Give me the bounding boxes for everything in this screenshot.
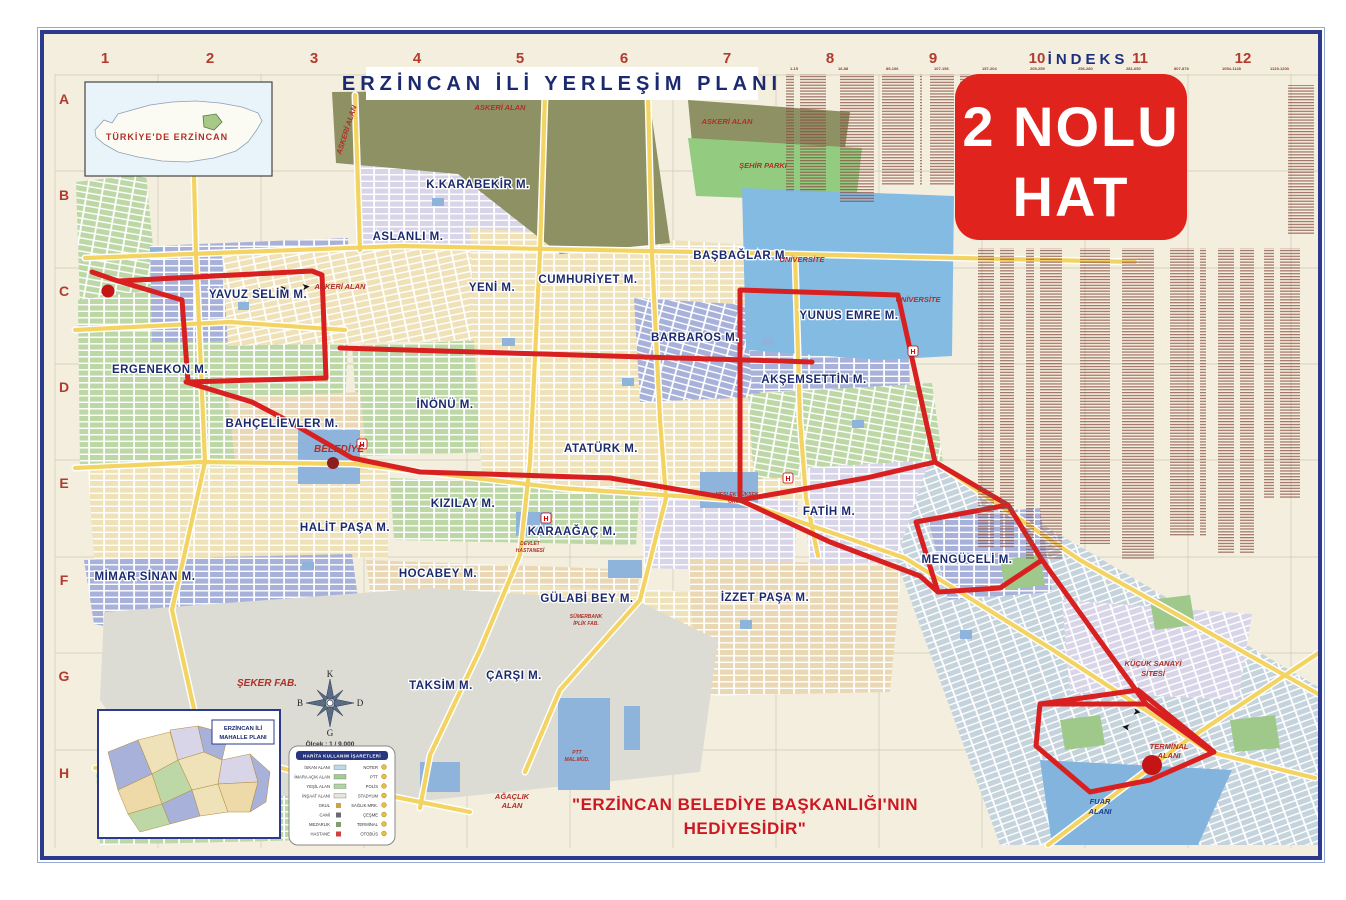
area-label: İPLİK FAB. <box>573 620 599 627</box>
svg-text:STADYUM: STADYUM <box>358 794 379 799</box>
svg-text:E: E <box>59 475 68 491</box>
svg-text:SAĞLIK MRK.: SAĞLIK MRK. <box>351 803 378 808</box>
svg-text:MEZARLIK: MEZARLIK <box>309 822 330 827</box>
neighborhood-label: TAKSİM M. <box>409 679 473 692</box>
map-sheet: ➤ ➤ ➤ ➤ ➤ H H H H K.KARABEKİR M. ASLANLI… <box>40 30 1322 860</box>
university-lake-area <box>742 188 954 360</box>
svg-text:NOTER: NOTER <box>363 765 378 770</box>
svg-text:807-878: 807-878 <box>1174 66 1189 71</box>
neighborhood-label: YENİ M. <box>469 281 515 294</box>
svg-text:OKUL: OKUL <box>319 803 331 808</box>
svg-text:9: 9 <box>929 50 937 67</box>
neighborhood-label: BAHÇELİEVLER M. <box>226 417 339 430</box>
compass-west: B <box>297 698 303 708</box>
area-label: SİTESİ <box>1141 669 1166 678</box>
badge-line2: HAT <box>1013 165 1130 228</box>
badge-line1: 2 NOLU <box>962 95 1179 158</box>
turkey-inset: TÜRKİYE'DE ERZİNCAN <box>85 82 272 176</box>
neighborhood-label: İZZET PAŞA M. <box>721 591 809 604</box>
area-label: PTT <box>572 750 582 756</box>
area-label: ASKERİ ALAN <box>701 117 754 126</box>
neighborhood-label: KIZILAY M. <box>431 498 495 510</box>
neighborhood-label: BARBAROS M. <box>651 332 739 344</box>
neighborhood-label: GÜLABİ BEY M. <box>540 592 633 605</box>
svg-text:256-280: 256-280 <box>1078 66 1093 71</box>
area-label: ÜNİVERSİTE <box>895 295 941 304</box>
svg-text:1: 1 <box>101 50 109 67</box>
svg-text:7: 7 <box>723 50 731 67</box>
svg-text:➤: ➤ <box>1121 720 1131 732</box>
turkey-inset-label: TÜRKİYE'DE ERZİNCAN <box>106 132 228 142</box>
city-hall-label: BELEDİYE <box>314 442 364 455</box>
svg-text:8: 8 <box>826 50 834 67</box>
compass-south: G <box>327 728 334 738</box>
neighborhood-label: YUNUS EMRE M. <box>799 310 898 322</box>
svg-text:11: 11 <box>1132 50 1148 67</box>
title-band: ERZİNCAN İLİ YERLEŞİM PLANI <box>342 67 782 100</box>
svg-text:16-88: 16-88 <box>838 66 849 71</box>
city-map[interactable]: ➤ ➤ ➤ ➤ ➤ H H H H K.KARABEKİR M. ASLANLI… <box>44 34 1318 856</box>
area-label: MAL.MÜD. <box>565 756 590 763</box>
svg-text:ÇEŞME: ÇEŞME <box>363 813 378 818</box>
svg-text:CAMİ: CAMİ <box>320 813 330 818</box>
svg-text:HASTANE: HASTANE <box>311 832 331 837</box>
map-page: { "page": { "title": "ERZİNCAN İLİ YERLE… <box>0 0 1346 900</box>
area-label: AĞAÇLIK <box>494 792 530 801</box>
svg-text:G: G <box>59 668 70 684</box>
neighborhood-label: ASLANLI M. <box>373 231 444 243</box>
svg-text:PTT: PTT <box>370 775 378 780</box>
city-hall-marker <box>327 457 339 469</box>
area-label: ALANI <box>1088 807 1113 816</box>
svg-text:281-650: 281-650 <box>1126 66 1141 71</box>
area-label: SÜMERBANK <box>570 613 603 620</box>
svg-text:12: 12 <box>1235 50 1252 67</box>
svg-text:İMARA AÇIK ALAN: İMARA AÇIK ALAN <box>294 775 330 780</box>
area-label: ASKERİ ALAN <box>474 103 527 112</box>
neighborhood-label: KARAAĞAÇ M. <box>528 525 617 538</box>
neighborhood-label: MENGÜCELİ M. <box>922 553 1013 566</box>
neighborhood-label: FATİH M. <box>803 505 855 518</box>
area-label: ASKERİ ALAN <box>314 282 367 291</box>
page-title: ERZİNCAN İLİ YERLEŞİM PLANI <box>342 72 782 95</box>
svg-text:5: 5 <box>516 50 524 67</box>
area-label: ŞEKER FAB. <box>237 678 297 689</box>
neighborhood-label: İNÖNÜ M. <box>416 398 473 411</box>
neighborhood-label: HALİT PAŞA M. <box>300 521 390 534</box>
area-label: ÜNİVERSİTE <box>779 255 825 264</box>
svg-text:1054-1128: 1054-1128 <box>1222 66 1242 71</box>
neighborhood-label: HOCABEY M. <box>399 568 477 580</box>
svg-text:F: F <box>60 572 69 588</box>
mahalle-inset-label: MAHALLE PLANI <box>219 735 267 741</box>
svg-text:157-204: 157-204 <box>982 66 997 71</box>
neighborhood-label: MİMAR SİNAN M. <box>95 570 196 583</box>
neighborhood-label: YAVUZ SELİM M. <box>209 288 307 301</box>
neighborhood-label: ATATÜRK M. <box>564 442 638 455</box>
neighborhood-label: ÇARŞI M. <box>486 670 542 682</box>
svg-text:OTOBÜS: OTOBÜS <box>360 832 378 837</box>
svg-text:C: C <box>59 283 69 299</box>
area-label: DEVLET <box>520 541 541 547</box>
compass-north: K <box>327 669 334 679</box>
dedication-line2: HEDİYESİDİR" <box>684 819 807 838</box>
area-label: FUAR <box>1090 797 1111 806</box>
mahalle-inset-label: ERZİNCAN İLİ <box>224 725 263 732</box>
area-label: ALANI <box>1157 751 1182 760</box>
area-label: TERMİNAL <box>1150 742 1189 751</box>
area-label: ŞEHİR PARKI <box>739 161 788 170</box>
hospital-icon: H <box>543 516 548 523</box>
svg-text:H: H <box>59 765 69 781</box>
map-legend: HARİTA KULLANIM İŞARETLERİ İSKAN ALANI İ… <box>289 746 395 845</box>
svg-text:1-15: 1-15 <box>790 66 799 71</box>
line-2-badge: 2 NOLU HAT <box>955 74 1187 240</box>
svg-text:2: 2 <box>206 50 214 67</box>
neighborhood-label: CUMHURİYET M. <box>538 273 637 286</box>
svg-text:B: B <box>59 187 69 203</box>
svg-text:4: 4 <box>413 50 422 67</box>
area-label: HASTANESİ <box>516 547 545 554</box>
dedication-line1: "ERZİNCAN BELEDİYE BAŞKANLIĞI'NIN <box>572 795 918 814</box>
svg-text:➤: ➤ <box>1132 706 1142 718</box>
svg-text:10: 10 <box>1029 50 1046 67</box>
svg-text:TERMİNAL: TERMİNAL <box>357 822 379 827</box>
svg-text:POLİS: POLİS <box>366 784 379 789</box>
area-label: ALAN <box>501 801 523 810</box>
svg-text:D: D <box>59 379 69 395</box>
svg-text:6: 6 <box>620 50 628 67</box>
mahalle-inset: ERZİNCAN İLİ MAHALLE PLANI <box>98 710 280 838</box>
svg-text:3: 3 <box>310 50 318 67</box>
svg-text:YEŞİL ALAN: YEŞİL ALAN <box>306 784 330 789</box>
svg-text:205-255: 205-255 <box>1030 66 1045 71</box>
svg-text:89-106: 89-106 <box>886 66 899 71</box>
neighborhood-label: ERGENEKON M. <box>112 364 208 376</box>
area-label: KÜÇÜK SANAYİ <box>1125 659 1183 668</box>
area-label: MESLEK YÜKSEK <box>716 491 759 498</box>
svg-text:İSKAN ALANI: İSKAN ALANI <box>304 765 330 770</box>
svg-text:1129-1203: 1129-1203 <box>1270 66 1290 71</box>
neighborhood-label: K.KARABEKİR M. <box>426 178 529 191</box>
hospital-icon: H <box>910 349 915 356</box>
area-label: OKULU <box>728 499 746 505</box>
neighborhood-label: AKŞEMSETTİN M. <box>761 373 866 386</box>
hospital-icon: H <box>785 476 790 483</box>
legend-title: HARİTA KULLANIM İŞARETLERİ <box>303 754 381 759</box>
compass-east: D <box>357 698 364 708</box>
route-endpoint-west <box>102 285 115 298</box>
neighborhood-label: BAŞBAĞLAR M. <box>693 249 788 262</box>
svg-text:107-156: 107-156 <box>934 66 949 71</box>
svg-text:İNŞAAT ALANI: İNŞAAT ALANI <box>302 794 330 799</box>
svg-text:A: A <box>59 91 69 107</box>
